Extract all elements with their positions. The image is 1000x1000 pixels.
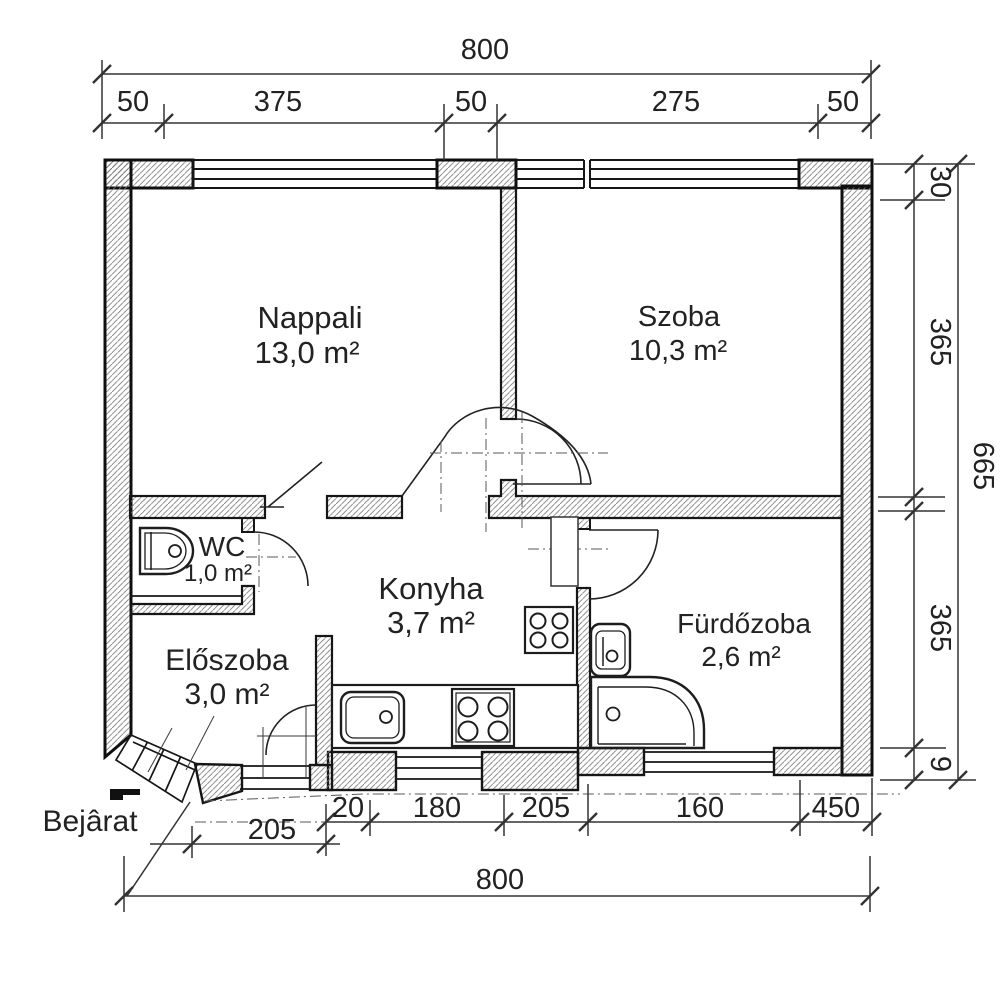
svg-text:Fürdőzoba: Fürdőzoba bbox=[677, 608, 811, 639]
svg-text:800: 800 bbox=[461, 34, 509, 66]
svg-text:1,0 m²: 1,0 m² bbox=[184, 560, 252, 587]
svg-text:WC: WC bbox=[199, 531, 246, 562]
svg-text:205: 205 bbox=[522, 792, 570, 824]
svg-text:450: 450 bbox=[812, 792, 860, 824]
svg-text:Előszoba: Előszoba bbox=[165, 644, 289, 677]
svg-text:2,6 m²: 2,6 m² bbox=[701, 641, 780, 672]
svg-text:800: 800 bbox=[476, 864, 524, 896]
svg-text:Nappali: Nappali bbox=[257, 300, 362, 335]
svg-text:665: 665 bbox=[967, 442, 999, 490]
svg-text:3,7 m²: 3,7 m² bbox=[387, 605, 475, 640]
svg-text:205: 205 bbox=[248, 814, 296, 846]
svg-text:30: 30 bbox=[924, 166, 956, 198]
svg-text:365: 365 bbox=[924, 318, 956, 366]
svg-text:Bejârat: Bejârat bbox=[42, 805, 138, 838]
svg-text:180: 180 bbox=[413, 792, 461, 824]
svg-text:375: 375 bbox=[254, 86, 302, 118]
svg-text:160: 160 bbox=[676, 792, 724, 824]
svg-text:20: 20 bbox=[332, 792, 364, 824]
svg-text:365: 365 bbox=[924, 604, 956, 652]
svg-text:50: 50 bbox=[117, 86, 149, 118]
svg-text:Konyha: Konyha bbox=[378, 571, 484, 606]
svg-text:50: 50 bbox=[827, 86, 859, 118]
svg-text:50: 50 bbox=[455, 86, 487, 118]
svg-text:3,0 m²: 3,0 m² bbox=[184, 678, 269, 711]
svg-text:Szoba: Szoba bbox=[638, 301, 721, 333]
svg-text:9: 9 bbox=[924, 756, 956, 772]
svg-text:275: 275 bbox=[652, 86, 700, 118]
svg-text:13,0 m²: 13,0 m² bbox=[254, 335, 359, 370]
svg-text:10,3 m²: 10,3 m² bbox=[629, 335, 728, 367]
